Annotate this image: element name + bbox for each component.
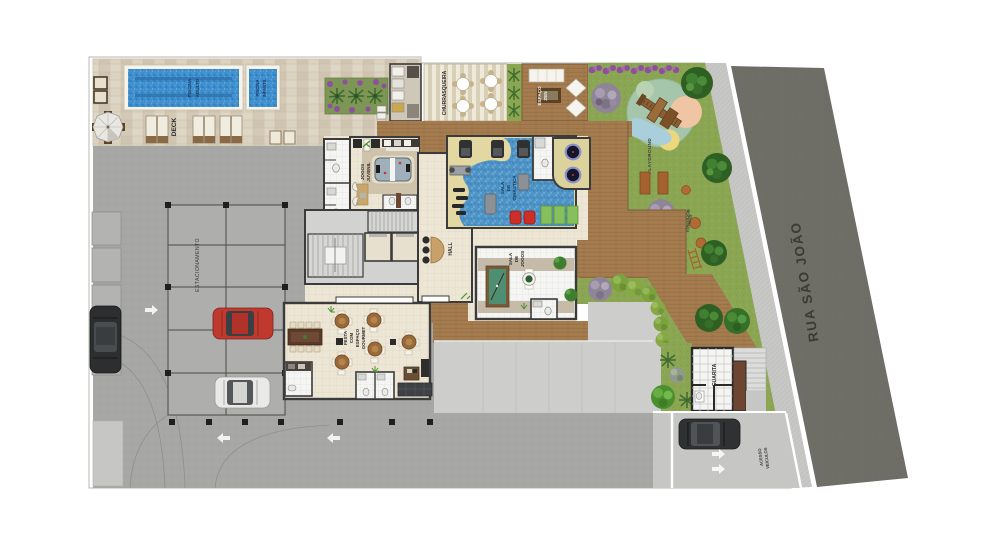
svg-text:COM: COM <box>349 333 354 344</box>
svg-text:DECK: DECK <box>171 117 178 136</box>
svg-text:ESTACIONAMENTO: ESTACIONAMENTO <box>195 238 201 292</box>
svg-text:PLAYGROUND: PLAYGROUND <box>647 138 652 175</box>
svg-text:GOURMET: GOURMET <box>361 326 366 349</box>
svg-text:GINÁSTICA: GINÁSTICA <box>511 175 517 201</box>
svg-text:PISCINA: PISCINA <box>187 78 192 97</box>
svg-text:ESPAÇO: ESPAÇO <box>355 328 360 347</box>
svg-text:SALA: SALA <box>500 181 505 194</box>
svg-text:FESTA: FESTA <box>343 330 348 345</box>
svg-text:GUARITA: GUARITA <box>712 363 718 386</box>
svg-text:ADULTO: ADULTO <box>195 78 200 97</box>
svg-text:INFANTIL: INFANTIL <box>262 78 267 97</box>
svg-text:DE: DE <box>514 256 519 262</box>
svg-text:SALA: SALA <box>508 252 513 265</box>
svg-text:JOGOS: JOGOS <box>520 251 525 267</box>
svg-text:ZEN: ZEN <box>543 91 548 101</box>
svg-text:CHURRASQUEIRA: CHURRASQUEIRA <box>442 70 448 115</box>
svg-text:PISCINA: PISCINA <box>255 80 260 97</box>
svg-text:HALL: HALL <box>448 242 454 255</box>
svg-text:ESPAÇO: ESPAÇO <box>537 86 542 105</box>
svg-text:DE: DE <box>506 185 511 191</box>
svg-text:JOGOS: JOGOS <box>360 164 365 180</box>
svg-text:JUVENIL: JUVENIL <box>366 162 371 182</box>
